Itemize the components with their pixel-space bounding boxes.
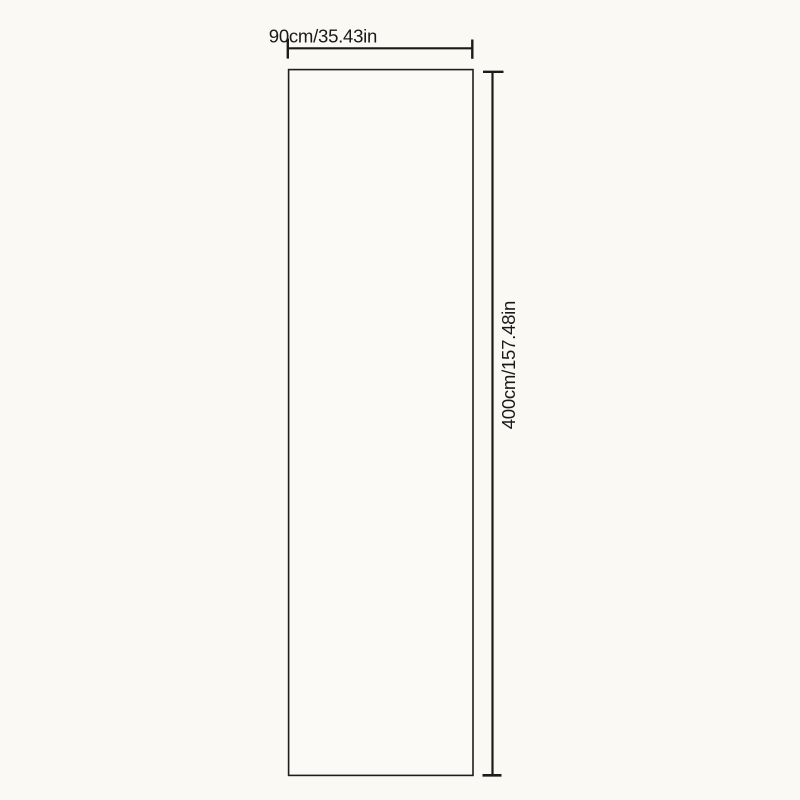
svg-text:90cm/35.43in: 90cm/35.43in — [269, 25, 377, 46]
svg-text:400cm/157.48in: 400cm/157.48in — [498, 301, 519, 429]
